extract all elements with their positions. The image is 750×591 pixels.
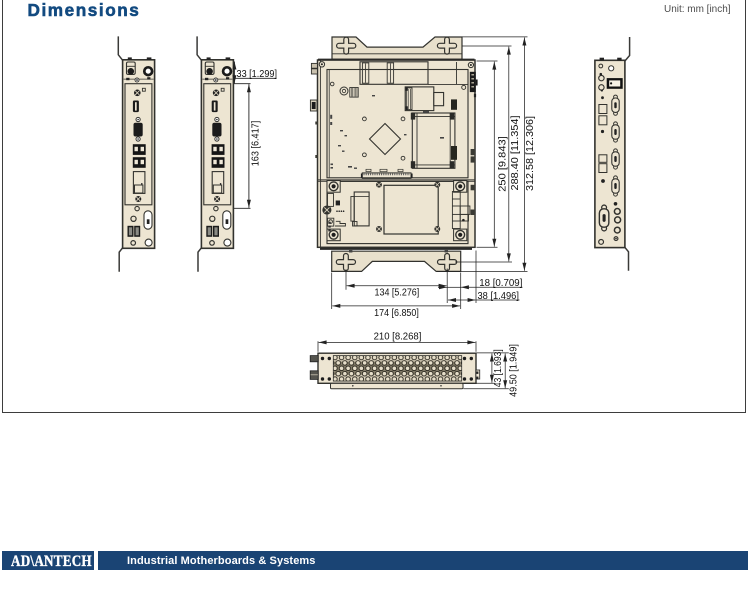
svg-text:312.58 [12.306]: 312.58 [12.306] (525, 116, 536, 191)
svg-text:250 [9.843]: 250 [9.843] (497, 136, 508, 192)
svg-text:174 [6.850]: 174 [6.850] (374, 308, 419, 319)
svg-text:49.50 [1.949]: 49.50 [1.949] (508, 344, 519, 397)
svg-text:210 [8.268]: 210 [8.268] (374, 332, 422, 343)
svg-text:43 [1.693]: 43 [1.693] (493, 349, 504, 387)
svg-text:18 [0.709]: 18 [0.709] (479, 278, 522, 289)
svg-text:163 [6.417]: 163 [6.417] (251, 121, 262, 167)
svg-text:38 [1.496]: 38 [1.496] (478, 291, 520, 302)
svg-text:288.40 [11.354]: 288.40 [11.354] (510, 115, 521, 190)
svg-text:134 [5.276]: 134 [5.276] (375, 288, 420, 299)
svg-text:33 [1.299]: 33 [1.299] (237, 69, 278, 80)
